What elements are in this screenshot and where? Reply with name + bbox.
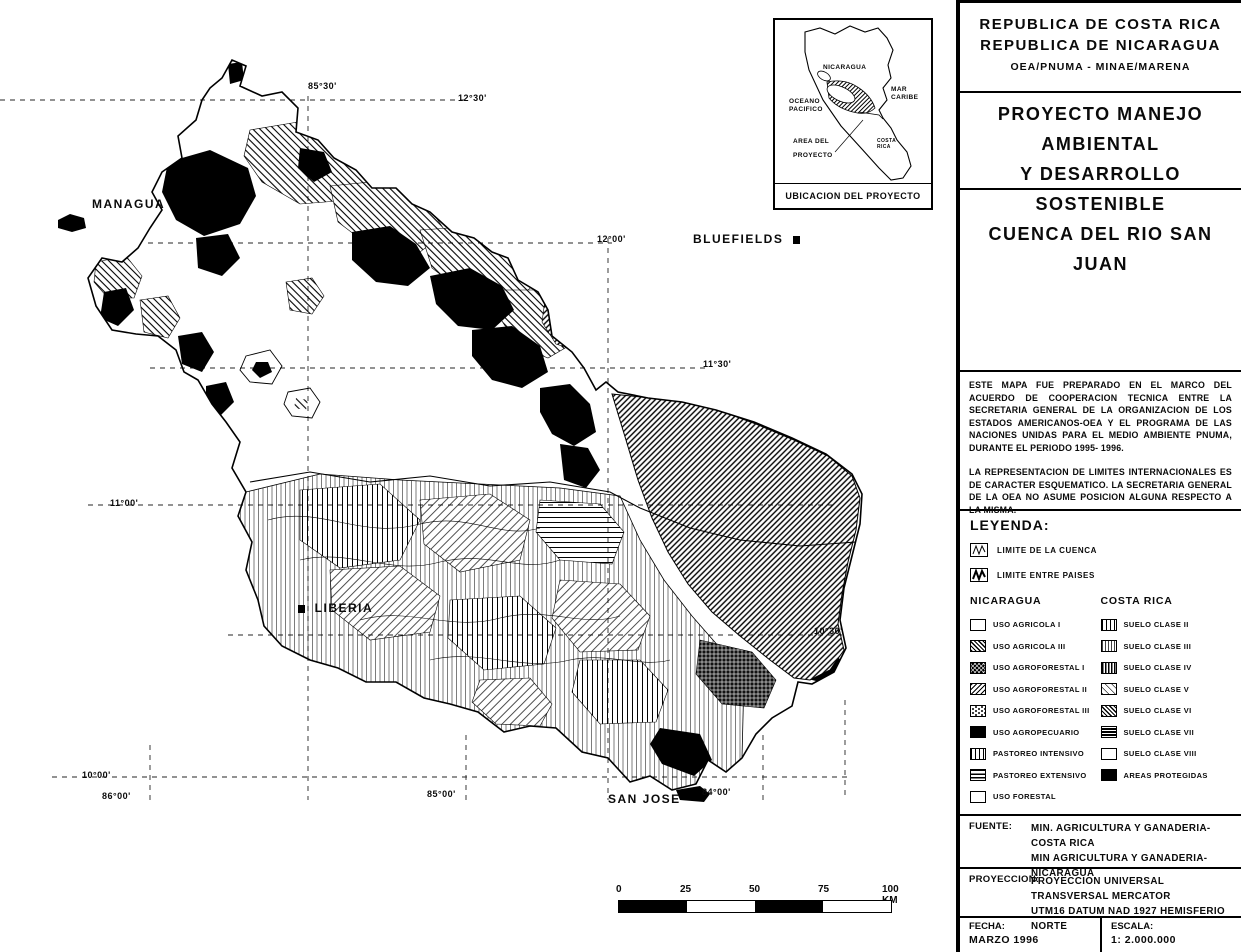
proyeccion-label: PROYECCION: — [969, 874, 1031, 916]
suelo-clase-v-swatch — [1101, 683, 1117, 695]
escala-label: ESCALA: — [1111, 921, 1241, 932]
legend-item: SUELO CLASE VIII — [1101, 743, 1232, 765]
pastoreo-extensivo-swatch — [970, 769, 986, 781]
legend-title: LEYENDA: — [970, 517, 1231, 533]
scale-bar: 0 25 50 75 100 KM — [618, 884, 900, 918]
areas-protegidas-swatch — [1101, 769, 1117, 781]
uso-agricola-i-swatch — [970, 619, 986, 631]
legend-item: USO AGRICOLA III — [970, 636, 1101, 658]
suelo-clase-vi-swatch — [1101, 705, 1117, 717]
country-line-2: REPUBLICA DE NICARAGUA — [960, 35, 1241, 56]
bluefields-marker — [793, 236, 800, 244]
legend-nicaragua-title: NICARAGUA — [970, 595, 1101, 607]
inset-label-costa-rica: COSTARICA — [877, 138, 896, 150]
legend-item: PASTOREO EXTENSIVO — [970, 765, 1101, 787]
city-label-san-jose: SAN JOSE — [608, 792, 681, 806]
liberia-marker — [298, 605, 305, 613]
uso-agroforestal-i-swatch — [970, 662, 986, 674]
suelo-clase-vii-swatch — [1101, 726, 1117, 738]
country-line-1: REPUBLICA DE COSTA RICA — [960, 14, 1241, 35]
limite-paises-icon — [970, 568, 988, 582]
uso-agricola-iii-swatch — [970, 640, 986, 652]
note-paragraph-1: ESTE MAPA FUE PREPARADO EN EL MARCO DEL … — [969, 379, 1232, 454]
panel-blank-section — [960, 190, 1241, 372]
city-label-liberia: LIBERIA — [298, 601, 373, 615]
escala-value: 1: 2.000.000 — [1111, 934, 1241, 946]
legend-item: USO AGROFORESTAL II — [970, 679, 1101, 701]
scale-tick-0: 0 — [616, 884, 622, 895]
proyeccion-value: PROYECCION UNIVERSAL TRANSVERSAL MERCATO… — [1031, 874, 1241, 916]
agencies-line: OEA/PNUMA - MINAE/MARENA — [960, 61, 1241, 73]
limite-cuenca-icon — [970, 543, 988, 557]
proyeccion-section: PROYECCION: PROYECCION UNIVERSAL TRANSVE… — [960, 869, 1241, 918]
legend-limite-cuenca: LIMITE DE LA CUENCA — [970, 542, 1231, 558]
inset-caption: UBICACION DEL PROYECTO — [775, 183, 931, 208]
legend-item: SUELO CLASE III — [1101, 636, 1232, 658]
title-block-panel: REPUBLICA DE COSTA RICA REPUBLICA DE NIC… — [956, 0, 1241, 952]
fecha-label: FECHA: — [969, 921, 1100, 932]
uso-agroforestal-iii-swatch — [970, 705, 986, 717]
legend-item: SUELO CLASE IV — [1101, 657, 1232, 679]
scale-bar-segments — [618, 900, 892, 913]
uso-agropecuario-swatch — [970, 726, 986, 738]
grid-label-12-30: 12°30' — [458, 93, 487, 103]
project-title-line1: PROYECTO MANEJO AMBIENTAL — [960, 99, 1241, 159]
legend-item: USO FORESTAL — [970, 786, 1101, 808]
legend-item: USO AGROPECUARIO — [970, 722, 1101, 744]
inset-locator-map: NICARAGUA MARCARIBE OCEANOPACIFICO AREA … — [773, 18, 933, 210]
pastoreo-intensivo-swatch — [970, 748, 986, 760]
escala-cell: ESCALA: 1: 2.000.000 — [1102, 918, 1241, 952]
legend-column-nicaragua: NICARAGUA USO AGRICOLA I USO AGRICOLA II… — [970, 595, 1101, 808]
project-title: PROYECTO MANEJO AMBIENTAL Y DESARROLLO S… — [960, 93, 1241, 190]
suelo-clase-iii-swatch — [1101, 640, 1117, 652]
fecha-cell: FECHA: MARZO 1996 — [960, 918, 1102, 952]
scale-tick-25: 25 — [680, 884, 691, 895]
inset-label-area-proyecto: AREA DELPROYECTO — [793, 138, 833, 160]
legend-item: SUELO CLASE VI — [1101, 700, 1232, 722]
grid-label-86-00: 86°00' — [102, 791, 131, 801]
grid-label-11-00: 11°00' — [110, 498, 138, 508]
suelo-clase-viii-swatch — [1101, 748, 1117, 760]
legend-item: SUELO CLASE VII — [1101, 722, 1232, 744]
grid-label-10-30: 10°30' — [814, 626, 843, 636]
legend-column-costa-rica: COSTA RICA SUELO CLASE II SUELO CLASE II… — [1101, 595, 1232, 808]
legend-item: PASTOREO INTENSIVO — [970, 743, 1101, 765]
fuente-value: MIN. AGRICULTURA Y GANADERIA-COSTA RICA … — [1031, 821, 1241, 867]
main-map: MANAGUA BLUEFIELDS LIBERIA SAN JOSE 85°3… — [0, 0, 956, 952]
legend-item: SUELO CLASE II — [1101, 614, 1232, 636]
note-paragraph-2: LA REPRESENTACION DE LIMITES INTERNACION… — [969, 466, 1232, 516]
grid-label-11-30: 11°30' — [703, 359, 731, 369]
legend-item: USO AGROFORESTAL I — [970, 657, 1101, 679]
uso-forestal-swatch — [970, 791, 986, 803]
inset-label-oceano-pacifico: OCEANOPACIFICO — [789, 98, 823, 114]
grid-label-84-00: 84°00' — [702, 787, 731, 797]
city-label-bluefields: BLUEFIELDS — [693, 232, 800, 246]
fuente-section: FUENTE: MIN. AGRICULTURA Y GANADERIA-COS… — [960, 816, 1241, 869]
legend-limite-paises: LIMITE ENTRE PAISES — [970, 567, 1231, 583]
legend-costa-rica-title: COSTA RICA — [1101, 595, 1232, 607]
fecha-value: MARZO 1996 — [969, 934, 1100, 946]
legend-item: USO AGRICOLA I — [970, 614, 1101, 636]
legend-item: SUELO CLASE V — [1101, 679, 1232, 701]
panel-notes: ESTE MAPA FUE PREPARADO EN EL MARCO DEL … — [960, 372, 1241, 511]
legend-item: AREAS PROTEGIDAS — [1101, 765, 1232, 787]
grid-label-85-30: 85°30' — [308, 81, 337, 91]
scale-tick-50: 50 — [749, 884, 760, 895]
inset-label-mar-caribe: MARCARIBE — [891, 86, 918, 102]
managua-marker — [58, 214, 86, 232]
legend-item: USO AGROFORESTAL III — [970, 700, 1101, 722]
map-sheet: MANAGUA BLUEFIELDS LIBERIA SAN JOSE 85°3… — [0, 0, 1241, 952]
suelo-clase-iv-swatch — [1101, 662, 1117, 674]
suelo-clase-ii-swatch — [1101, 619, 1117, 631]
scale-tick-75: 75 — [818, 884, 829, 895]
legend: LEYENDA: LIMITE DE LA CUENCA LIMITE ENTR… — [960, 511, 1241, 816]
city-label-managua: MANAGUA — [92, 197, 165, 211]
inset-label-nicaragua: NICARAGUA — [823, 64, 866, 72]
grid-label-10-00: 10°00' — [82, 770, 111, 780]
uso-agroforestal-ii-swatch — [970, 683, 986, 695]
fuente-label: FUENTE: — [969, 821, 1031, 867]
panel-header: REPUBLICA DE COSTA RICA REPUBLICA DE NIC… — [960, 3, 1241, 93]
fecha-escala-row: FECHA: MARZO 1996 ESCALA: 1: 2.000.000 — [960, 918, 1241, 952]
grid-label-12-00: 12°00' — [597, 234, 626, 244]
grid-label-85-00: 85°00' — [427, 789, 456, 799]
